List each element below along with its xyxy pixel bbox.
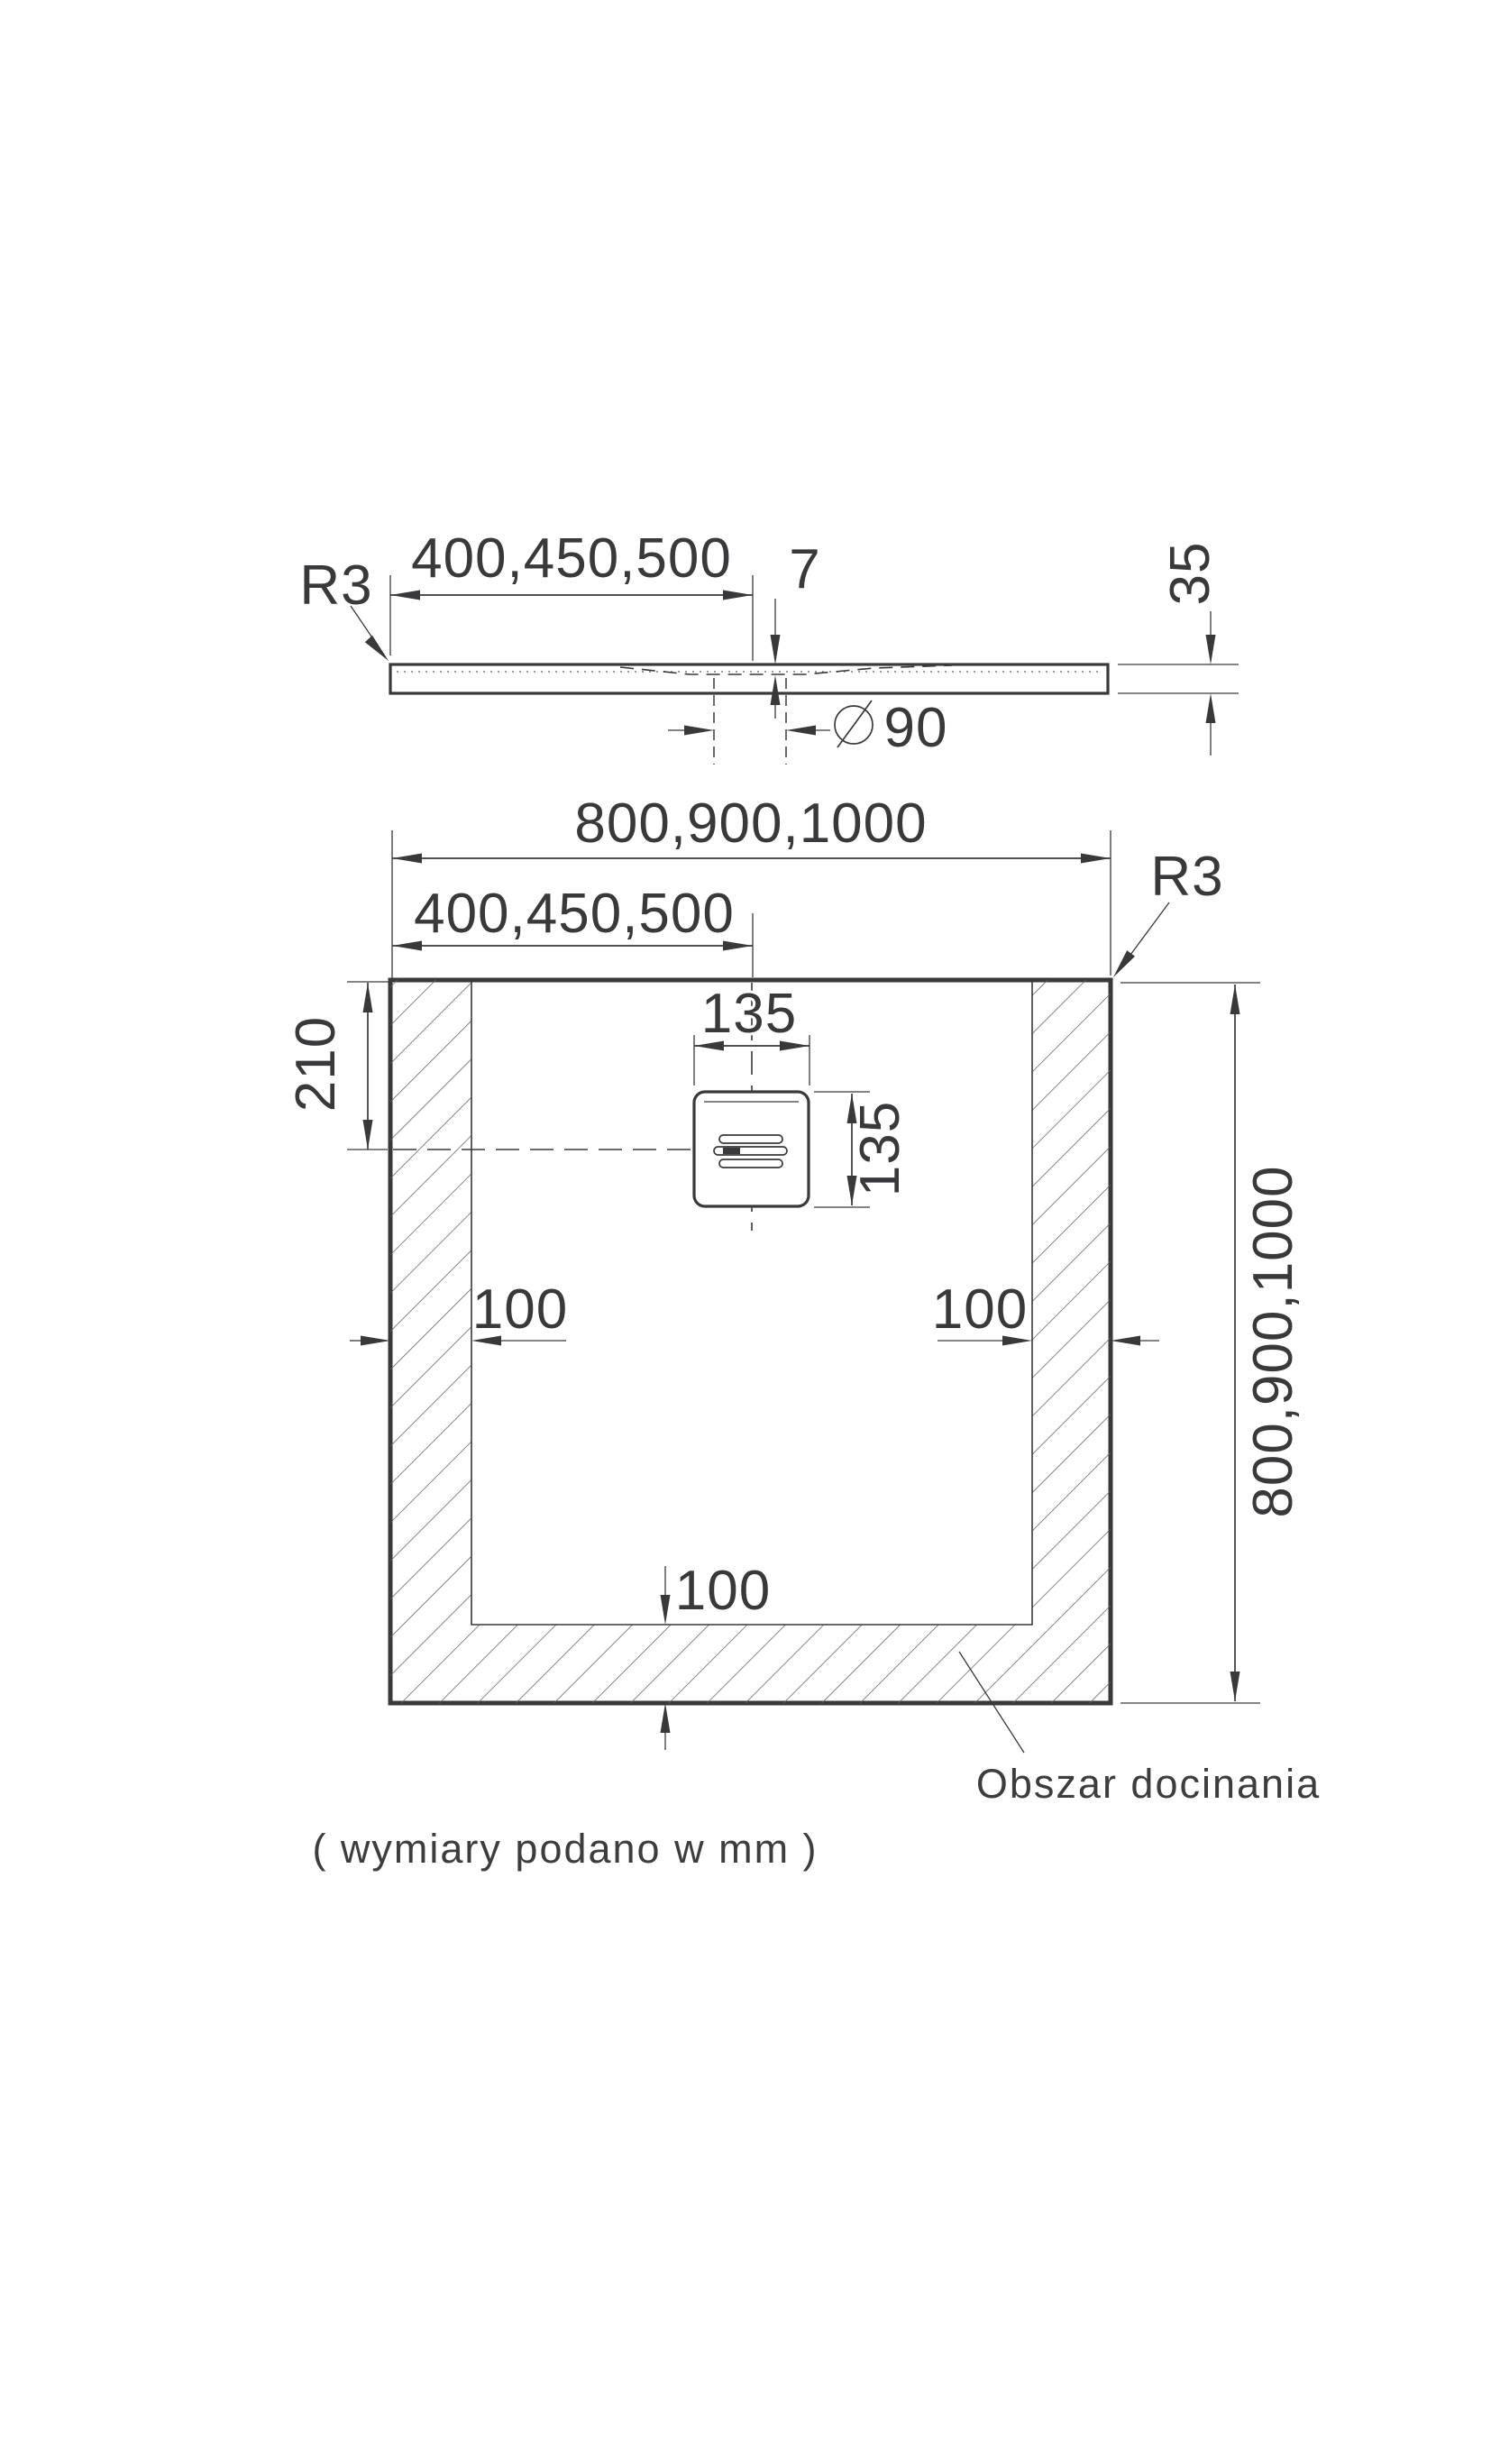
drain-height-text: 135	[849, 1101, 911, 1196]
drain-width-text: 135	[701, 983, 797, 1045]
profile-recess-depth-text: 7	[789, 538, 820, 600]
profile-radius-arrowhead	[365, 636, 389, 661]
profile-drain-diameter-text: 90	[884, 697, 948, 759]
drain-slot-mark	[723, 1148, 740, 1154]
trim-left-text: 100	[472, 1278, 568, 1341]
profile-drain-offset-text: 400,450,500	[411, 527, 732, 590]
profile-drain-offset-dimension: 400,450,500	[390, 527, 753, 661]
trim-bottom-text: 100	[675, 1560, 771, 1622]
tray-profile-outline	[390, 664, 1108, 693]
plan-view: 800,900,1000 400,450,500 R3 210	[285, 792, 1321, 1807]
drain-slot	[719, 1159, 782, 1168]
shower-tray-drawing: R3 400,450,500 7 35	[0, 0, 1491, 2464]
technical-drawing-page: R3 400,450,500 7 35	[0, 0, 1491, 2464]
drain-slot	[719, 1135, 782, 1143]
profile-height-text: 35	[1159, 542, 1221, 606]
trim-area-label: Obszar docinania	[976, 1761, 1321, 1807]
units-footnote: ( wymiary podano w mm )	[312, 1826, 818, 1872]
plan-overall-depth-text: 800,900,1000	[1242, 1165, 1304, 1517]
plan-drain-offset-y-text: 210	[285, 1016, 347, 1112]
plan-radius-arrowhead	[1113, 950, 1135, 977]
plan-overall-depth-dimension: 800,900,1000	[1121, 983, 1304, 1703]
diameter-symbol-icon	[835, 701, 873, 747]
profile-height-dimension: 35	[1118, 542, 1239, 756]
trim-right-text: 100	[932, 1278, 1028, 1341]
plan-radius-label: R3	[1150, 846, 1223, 908]
profile-radius-label: R3	[299, 554, 372, 617]
profile-view: R3 400,450,500 7 35	[299, 527, 1239, 765]
plan-overall-width-text: 800,900,1000	[574, 792, 927, 855]
plan-drain-offset-y-dimension: 210	[285, 982, 389, 1150]
plan-drain-offset-x-dimension: 400,450,500	[392, 883, 753, 977]
drain-grate	[694, 1092, 809, 1206]
plan-drain-offset-x-text: 400,450,500	[414, 883, 735, 945]
